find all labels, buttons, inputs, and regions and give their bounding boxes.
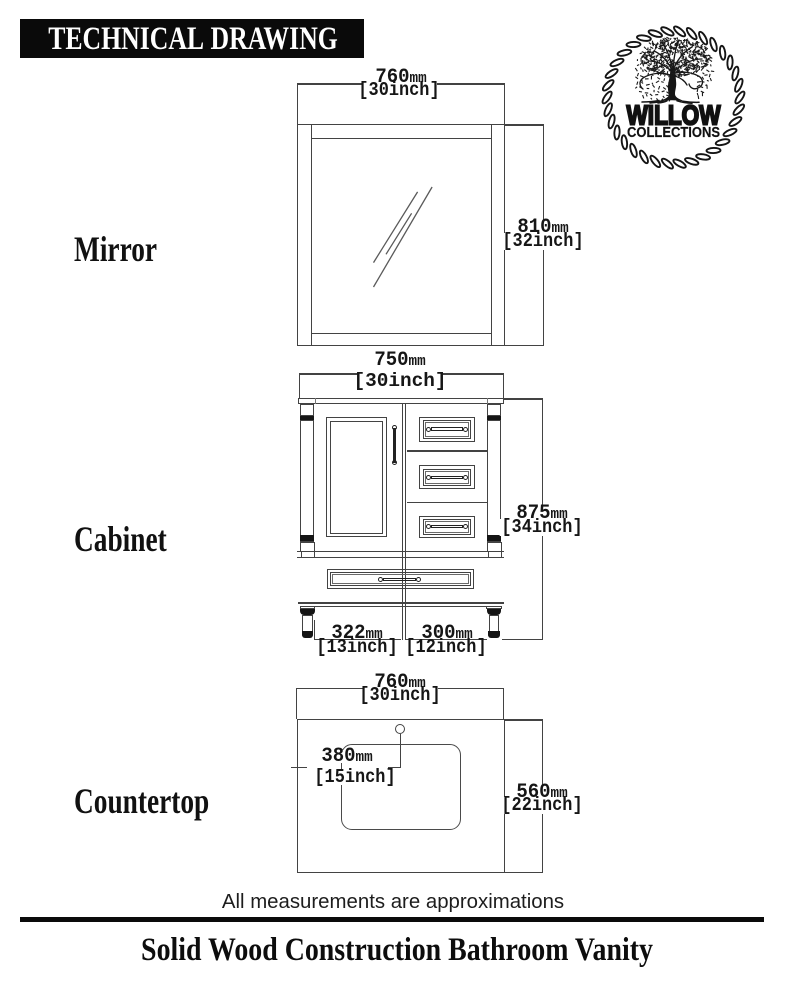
svg-text:COLLECTIONS: COLLECTIONS [627, 125, 720, 141]
